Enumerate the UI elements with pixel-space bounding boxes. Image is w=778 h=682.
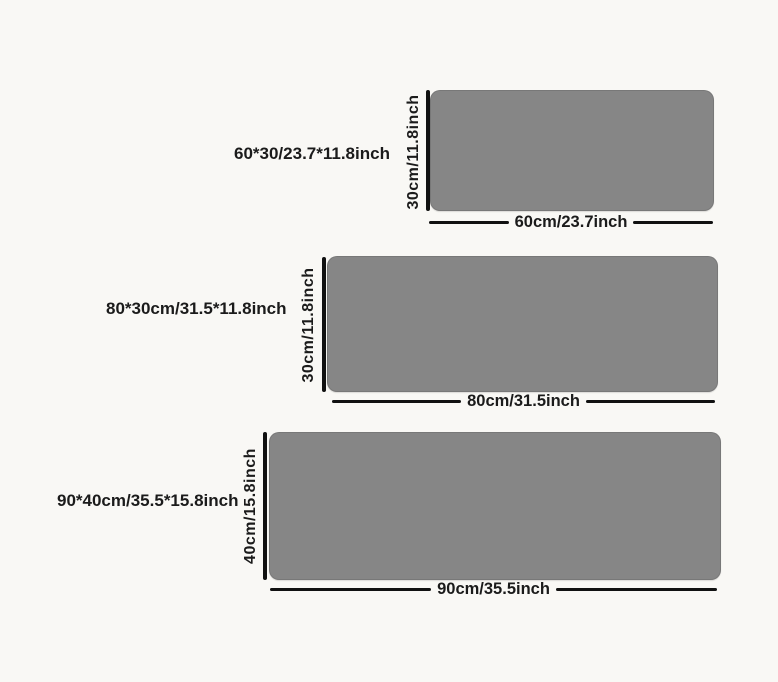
width-dimension-line-left <box>270 588 431 591</box>
mat-80x30 <box>327 256 718 392</box>
width-dimension-90x40: 90cm/35.5inch <box>270 578 717 600</box>
width-dimension-label-90x40: 90cm/35.5inch <box>431 580 556 599</box>
width-dimension-60x30: 60cm/23.7inch <box>429 211 713 233</box>
size-caption-80x30: 80*30cm/31.5*11.8inch <box>106 299 287 319</box>
height-dimension-bar-90x40 <box>263 432 267 580</box>
size-caption-90x40: 90*40cm/35.5*15.8inch <box>57 491 238 511</box>
width-dimension-label-60x30: 60cm/23.7inch <box>509 213 634 232</box>
mat-60x30 <box>430 90 714 211</box>
width-dimension-line-right <box>556 588 717 591</box>
size-comparison-diagram: 60*30/23.7*11.8inch 30cm/11.8inch 60cm/2… <box>0 0 778 682</box>
mat-90x40 <box>269 432 721 580</box>
width-dimension-line-left <box>429 221 509 224</box>
width-dimension-label-80x30: 80cm/31.5inch <box>461 392 586 411</box>
height-dimension-label-80x30: 30cm/11.8inch <box>300 267 318 382</box>
height-dimension-bar-80x30 <box>322 257 326 392</box>
width-dimension-line-right <box>633 221 713 224</box>
width-dimension-line-left <box>332 400 461 403</box>
width-dimension-line-right <box>586 400 715 403</box>
size-caption-60x30: 60*30/23.7*11.8inch <box>234 144 390 164</box>
height-dimension-label-90x40: 40cm/15.8inch <box>242 448 260 564</box>
width-dimension-80x30: 80cm/31.5inch <box>332 390 715 412</box>
height-dimension-label-60x30: 30cm/11.8inch <box>405 94 423 209</box>
